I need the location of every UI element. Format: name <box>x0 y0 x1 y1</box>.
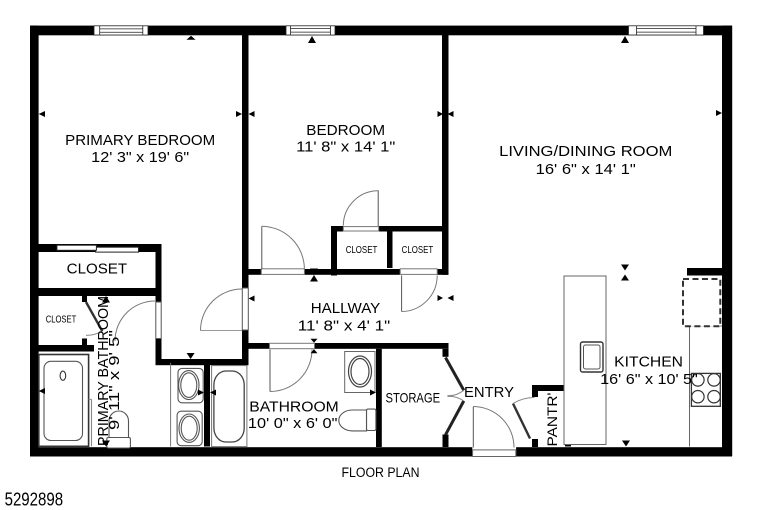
svg-text:11' 8" x 4' 1": 11' 8" x 4' 1" <box>298 317 390 334</box>
svg-text:CLOSET: CLOSET <box>46 315 77 326</box>
svg-text:BEDROOM: BEDROOM <box>306 122 385 139</box>
svg-text:16' 6" x 10' 5": 16' 6" x 10' 5" <box>600 371 698 388</box>
svg-text:PRIMARY BEDROOM: PRIMARY BEDROOM <box>65 132 215 149</box>
svg-text:16' 6" x 14' 1": 16' 6" x 14' 1" <box>536 161 636 178</box>
svg-text:HALLWAY: HALLWAY <box>311 300 381 317</box>
svg-text:STORAGE: STORAGE <box>386 390 441 406</box>
svg-text:ENTRY: ENTRY <box>464 384 514 401</box>
svg-text:CLOSET: CLOSET <box>67 260 127 277</box>
svg-text:12' 3" x 19' 6": 12' 3" x 19' 6" <box>91 149 189 166</box>
svg-text:LIVING/DINING ROOM: LIVING/DINING ROOM <box>499 143 672 160</box>
svg-text:KITCHEN: KITCHEN <box>614 354 683 371</box>
svg-text:CLOSET: CLOSET <box>402 245 434 256</box>
svg-text:BATHROOM: BATHROOM <box>249 398 339 415</box>
svg-text:10' 0" x 6' 0": 10' 0" x 6' 0" <box>248 415 338 432</box>
svg-text:11' 8" x 14' 1": 11' 8" x 14' 1" <box>296 139 395 156</box>
svg-text:5292898: 5292898 <box>5 490 64 510</box>
svg-text:FLOOR PLAN: FLOOR PLAN <box>342 465 420 480</box>
svg-text:PANTR': PANTR' <box>544 393 560 447</box>
svg-text:CLOSET: CLOSET <box>346 245 378 256</box>
svg-text:9' 11" x 9' 5": 9' 11" x 9' 5" <box>107 330 123 430</box>
